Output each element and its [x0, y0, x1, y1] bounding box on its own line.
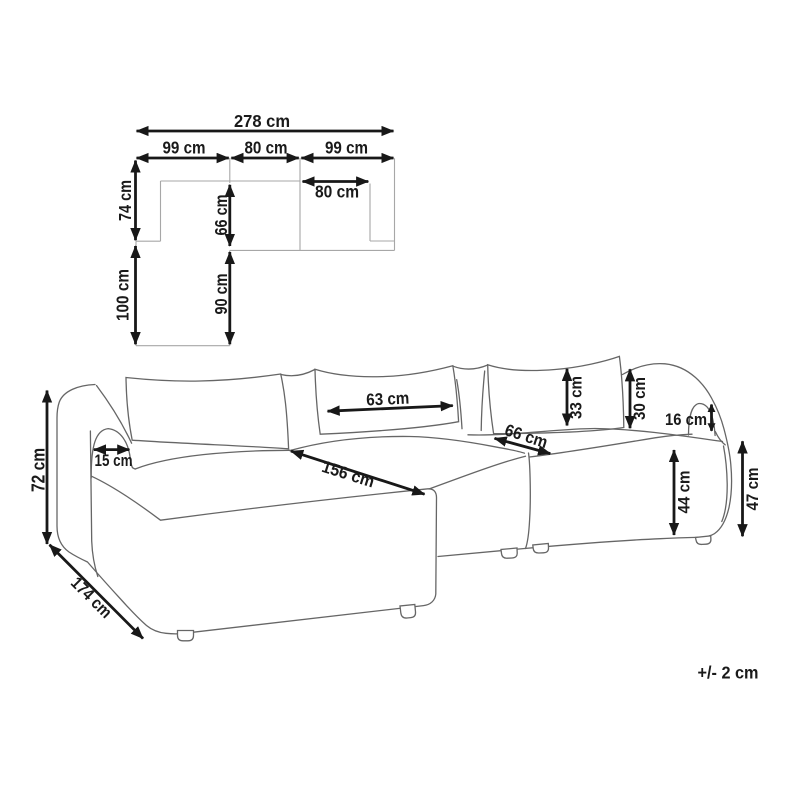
svg-text:99 cm: 99 cm: [325, 138, 368, 158]
svg-text:16 cm: 16 cm: [665, 410, 707, 429]
svg-text:100 cm: 100 cm: [113, 269, 133, 321]
svg-text:156 cm: 156 cm: [320, 457, 377, 491]
svg-text:33 cm: 33 cm: [567, 376, 586, 419]
svg-text:44 cm: 44 cm: [675, 471, 694, 514]
svg-text:80 cm: 80 cm: [245, 138, 288, 158]
svg-text:66 cm: 66 cm: [211, 195, 231, 236]
svg-text:47 cm: 47 cm: [743, 468, 762, 511]
svg-text:74 cm: 74 cm: [115, 180, 135, 221]
svg-text:63 cm: 63 cm: [366, 389, 410, 410]
svg-text:72 cm: 72 cm: [28, 448, 48, 492]
svg-text:99 cm: 99 cm: [163, 138, 206, 158]
svg-text:30 cm: 30 cm: [630, 377, 649, 420]
svg-text:90 cm: 90 cm: [211, 274, 231, 315]
svg-text:+/- 2 cm: +/- 2 cm: [698, 663, 759, 683]
svg-text:15 cm: 15 cm: [95, 451, 133, 470]
svg-text:278 cm: 278 cm: [234, 111, 290, 131]
svg-text:80 cm: 80 cm: [315, 182, 359, 202]
svg-text:174 cm: 174 cm: [67, 573, 116, 622]
